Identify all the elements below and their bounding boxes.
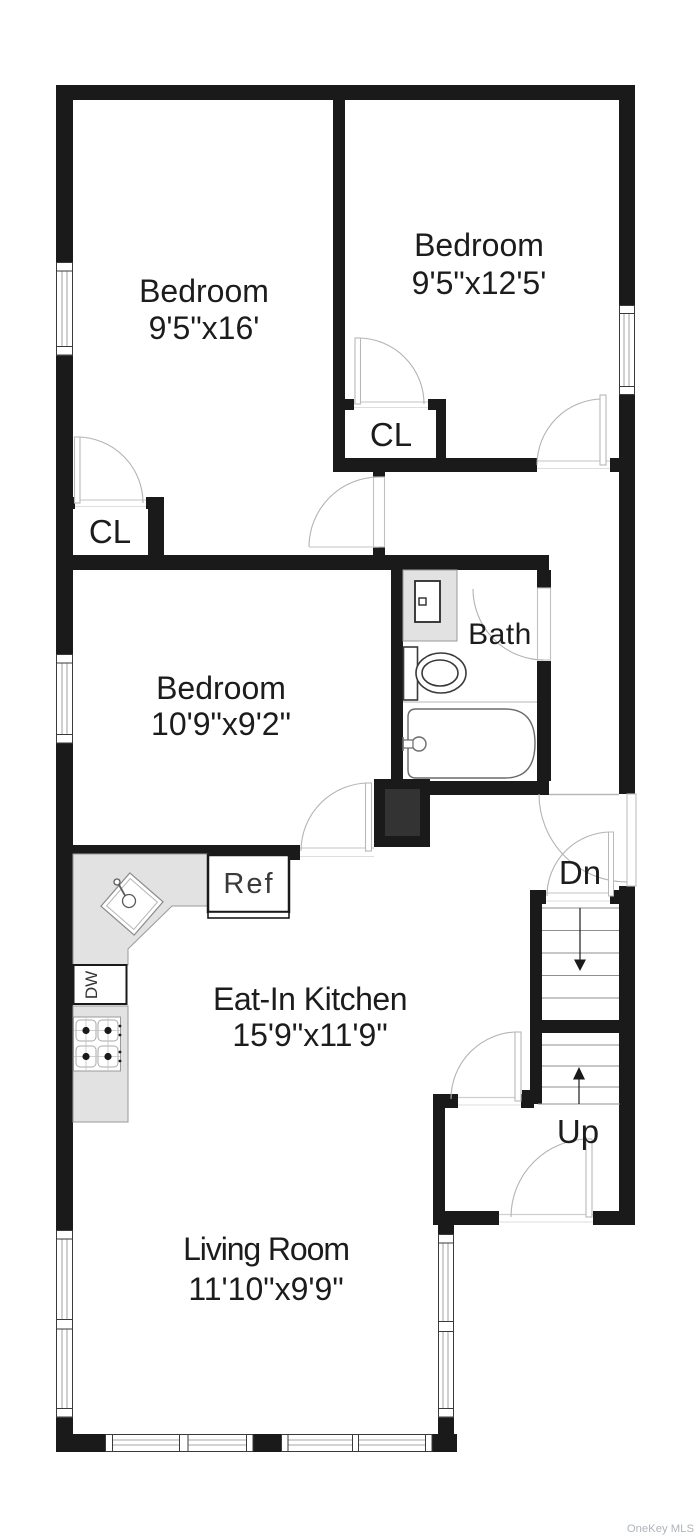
- svg-text:Bedroom: Bedroom: [139, 273, 269, 309]
- svg-text:Living Room: Living Room: [183, 1231, 349, 1267]
- svg-text:Bath: Bath: [468, 618, 532, 651]
- svg-text:OneKey MLS: OneKey MLS: [627, 1523, 695, 1535]
- svg-text:CL: CL: [89, 513, 131, 550]
- svg-text:15'9"x11'9": 15'9"x11'9": [232, 1017, 387, 1053]
- svg-text:10'9"x9'2": 10'9"x9'2": [151, 706, 291, 742]
- svg-text:Ref: Ref: [223, 868, 274, 900]
- svg-text:Bedroom: Bedroom: [414, 227, 544, 263]
- svg-text:CL: CL: [370, 416, 412, 453]
- svg-text:Dn: Dn: [559, 854, 601, 891]
- svg-text:DW: DW: [82, 971, 101, 999]
- svg-text:Up: Up: [557, 1113, 599, 1150]
- svg-text:11'10"x9'9": 11'10"x9'9": [188, 1271, 343, 1307]
- svg-text:9'5"x16': 9'5"x16': [149, 310, 260, 346]
- svg-text:9'5"x12'5': 9'5"x12'5': [412, 265, 547, 301]
- svg-text:Eat-In Kitchen: Eat-In Kitchen: [213, 981, 407, 1017]
- svg-text:Bedroom: Bedroom: [156, 670, 286, 706]
